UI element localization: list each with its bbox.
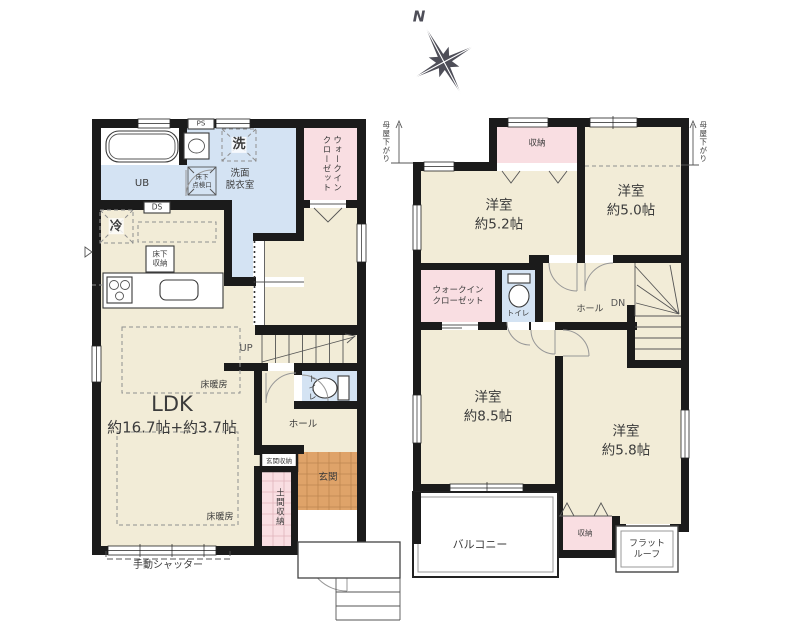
window	[413, 205, 421, 250]
window	[357, 224, 366, 262]
stove-icon	[107, 277, 132, 303]
underfloor-storage-box	[146, 246, 174, 272]
window	[413, 395, 421, 443]
ds-box	[144, 202, 170, 213]
balcony-outline	[413, 492, 558, 577]
flat-roof-outline	[616, 526, 678, 572]
floorplan-page: N PS 洗 洗面 脱衣室 UB 床下 点検口 ウォークイン クローゼット DS…	[0, 0, 800, 640]
sink-icon	[160, 280, 198, 300]
window	[92, 346, 101, 382]
floor1-room-fills	[101, 127, 357, 546]
floor1-plan	[85, 119, 400, 620]
washbasin-icon	[184, 133, 209, 159]
window	[508, 118, 548, 127]
entrance-porch	[298, 542, 400, 620]
compass-icon	[395, 11, 491, 110]
window	[590, 116, 637, 129]
window	[681, 410, 689, 458]
window	[216, 119, 250, 128]
toilet-2f-icon	[508, 274, 530, 307]
window	[138, 119, 170, 128]
ps-box	[188, 119, 214, 129]
bathtub-icon	[106, 131, 178, 162]
floor2-plan	[391, 116, 699, 577]
window	[424, 162, 454, 171]
floorplan-linework	[0, 0, 800, 640]
window	[108, 544, 216, 557]
vent-marker	[85, 247, 92, 257]
toilet-1f-icon	[313, 376, 349, 400]
